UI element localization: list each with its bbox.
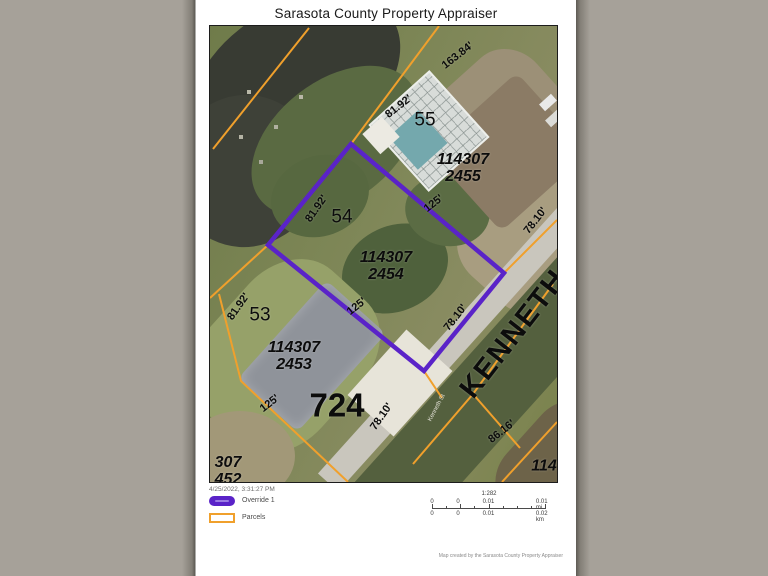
map-view: 163.84' 81.92' 55 114307 2455 125' 78.10… [209,25,558,483]
scale-tick-label: 0.01 [483,511,495,517]
scale-labels-km: 0 0 0.01 0.02 km [432,511,545,518]
scale-tick-label: 0.02 km [536,511,548,523]
lot-number-label: 55 [414,111,435,130]
footer-credit: Map created by the Sarasota County Prope… [439,553,563,559]
document-page: Sarasota County Property Appraiser [196,0,576,576]
override-swatch [209,496,235,506]
legend-item-parcels: Parcels [209,512,275,523]
parcels-swatch [209,513,235,523]
map-timestamp: 4/25/2022, 3:31:27 PM [209,486,275,493]
parcel-number-label: 114307 2454 [360,250,412,284]
legend-item-override: Override 1 [209,495,275,506]
parcel-number-label: 114307 2453 [268,340,320,374]
lot-number-label: 53 [249,306,270,325]
parcel-number-label: 114307 2455 [437,152,489,186]
block-number-label: 724 [309,389,364,422]
scale-tick-label: 0 [430,511,433,517]
scale-tick-label: 0 [456,499,459,505]
legend-label: Parcels [242,514,265,521]
scale-ratio: 1:282 [428,491,550,497]
scale-bar: 1:282 0 0 0.01 0.01 mi 0 0 0 [428,491,550,525]
scale-bar-line [432,508,545,509]
legend-label: Override 1 [242,497,275,504]
legend: Override 1 Parcels [209,495,275,529]
letterbox-background: Sarasota County Property Appraiser [0,0,768,576]
page-title: Sarasota County Property Appraiser [196,6,576,21]
scale-tick-label: 0 [456,511,459,517]
parcel-number-label: 114 [531,459,557,476]
lot-number-label: 54 [331,208,352,227]
parcel-number-label: 307 452 [215,455,242,483]
